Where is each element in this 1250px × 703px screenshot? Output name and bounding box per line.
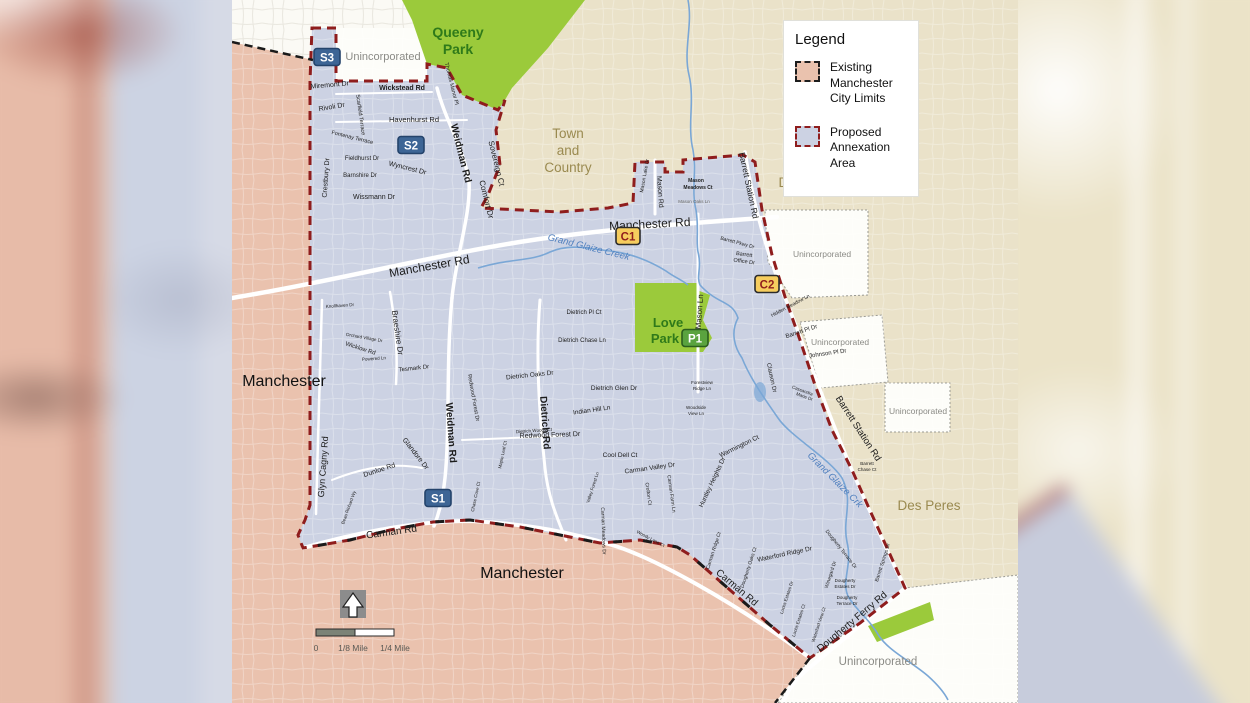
area-label: Unincorporated bbox=[811, 337, 869, 347]
road-label: Dietrich Glen Dr bbox=[591, 385, 638, 392]
badge-label: S3 bbox=[320, 53, 334, 65]
road-label: Forestview bbox=[691, 380, 714, 385]
scale-bar bbox=[316, 629, 394, 636]
road-label: Dougherty bbox=[837, 595, 859, 600]
badge-label: S1 bbox=[431, 494, 446, 506]
area-label: Park bbox=[651, 331, 680, 346]
area-label: Des Peres bbox=[897, 498, 960, 513]
area-label: Park bbox=[443, 41, 474, 57]
road-label: Dougherty bbox=[835, 578, 857, 583]
area-label: Unincorporated bbox=[839, 656, 918, 668]
scale-tick: 1/8 Mile bbox=[338, 643, 368, 653]
badge-S2: S2 bbox=[398, 137, 424, 154]
area-label: Country bbox=[544, 160, 592, 175]
screenshot-root: UnincorporatedQueenyParkTownandCountryDe… bbox=[0, 0, 1250, 703]
existing-city-limits-swatch bbox=[795, 61, 820, 82]
legend-item-proposed: Proposed Annexation Area bbox=[795, 125, 907, 172]
area-label: Manchester bbox=[480, 565, 564, 582]
area-label: Town bbox=[552, 126, 584, 141]
road-label: Havenhurst Rd bbox=[389, 115, 439, 124]
road-label: Meadows Ct bbox=[683, 185, 713, 191]
road-label: Estates Dr bbox=[834, 584, 856, 589]
road-label: Cool Dell Ct bbox=[603, 452, 638, 459]
legend-title: Legend bbox=[795, 31, 907, 48]
legend-item-existing: Existing Manchester City Limits bbox=[795, 60, 907, 107]
badge-S1: S1 bbox=[425, 490, 451, 507]
scale-tick: 1/4 Mile bbox=[380, 643, 410, 653]
legend-item-label: Existing Manchester City Limits bbox=[830, 60, 907, 107]
area-label: Unincorporated bbox=[793, 249, 851, 259]
blurred-annexation-corner bbox=[1018, 483, 1230, 703]
road-label: Dietrich Pl Ct bbox=[566, 310, 601, 316]
road-label: View Ln bbox=[688, 411, 704, 416]
road-label: Fieldhurst Dr bbox=[345, 156, 379, 162]
badge-S3: S3 bbox=[314, 49, 340, 66]
blurred-backdrop-right bbox=[1018, 0, 1250, 703]
area-label: Unincorporated bbox=[345, 51, 420, 63]
badge-C1: C1 bbox=[616, 228, 640, 245]
badge-label: C1 bbox=[621, 232, 636, 244]
area-label: Love bbox=[653, 315, 683, 330]
badge-label: P1 bbox=[688, 334, 703, 346]
road-label: Terrace Dr bbox=[836, 601, 858, 606]
road-label: Wickstead Rd bbox=[379, 85, 425, 92]
badge-C2: C2 bbox=[755, 276, 779, 293]
badge-label: S2 bbox=[404, 141, 418, 153]
road-label: Barrett bbox=[860, 461, 874, 466]
area-label: Queeny bbox=[432, 24, 484, 40]
road-label: Woodside bbox=[686, 405, 706, 410]
badge-P1: P1 bbox=[682, 330, 708, 347]
road-label: Chase Ct bbox=[858, 467, 878, 472]
scale-tick: 0 bbox=[314, 643, 319, 653]
road-label: Barnshire Dr bbox=[343, 173, 377, 179]
road-label: Mason bbox=[688, 178, 704, 184]
area-label: and bbox=[557, 143, 580, 158]
road-label: Wissmann Dr bbox=[353, 194, 396, 201]
road-label: Ridge Ln bbox=[693, 386, 712, 391]
road-label: Dietrich Chase Ln bbox=[558, 338, 606, 344]
area-label: Manchester bbox=[242, 373, 326, 390]
map-legend: Legend Existing Manchester City Limits P… bbox=[783, 20, 919, 197]
proposed-annexation-swatch bbox=[795, 126, 820, 147]
road-label: Mason Oaks Ln bbox=[678, 199, 710, 204]
blurred-map-edge-left bbox=[0, 0, 232, 703]
annexation-map: UnincorporatedQueenyParkTownandCountryDe… bbox=[232, 0, 1018, 703]
badge-label: C2 bbox=[760, 280, 775, 292]
blurred-backdrop-left bbox=[0, 0, 232, 703]
blurred-map-edge-right bbox=[1018, 0, 1250, 703]
pond bbox=[754, 382, 766, 402]
area-label: Unincorporated bbox=[889, 406, 947, 416]
north-arrow bbox=[340, 590, 366, 618]
legend-item-label: Proposed Annexation Area bbox=[830, 125, 907, 172]
